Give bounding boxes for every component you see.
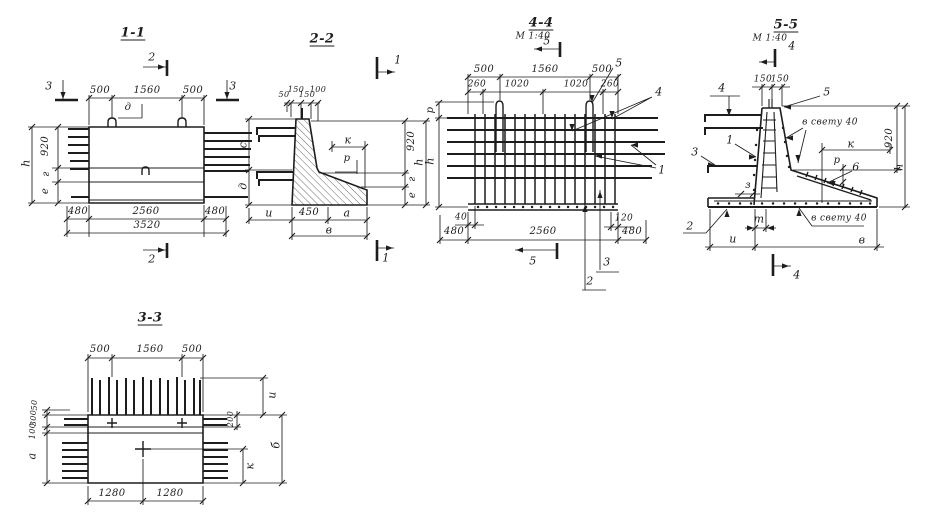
dim-label: 480 [444, 227, 464, 237]
dim-label: 480 [68, 207, 88, 217]
callout-label: 6 [852, 162, 859, 173]
view-title-3-3: 3-3 [138, 312, 163, 325]
callout-label: 1 [658, 165, 665, 176]
dim-label: 1560 [136, 345, 163, 355]
param-label: и [267, 391, 278, 399]
callout-label: 5 [823, 87, 830, 98]
dim-label: 3520 [133, 221, 160, 231]
param-label: в [859, 235, 866, 246]
section-mark-label: 3 [45, 81, 52, 92]
callout-label: 4 [655, 87, 662, 98]
note-label: в свету 40 [802, 119, 858, 128]
dim-label: 150 [754, 76, 772, 85]
view-title-4-4: 4-4 [529, 17, 554, 30]
param-label: г [408, 176, 418, 181]
param-label: к [345, 135, 352, 146]
param-label: р [344, 154, 351, 164]
dim-label: 100 [29, 423, 37, 439]
param-label: р [426, 107, 436, 114]
dim-label: 500 [183, 86, 203, 96]
section-mark-label: 2 [148, 254, 155, 265]
dim-label: 480 [205, 207, 225, 217]
dim-label: 2560 [529, 227, 556, 237]
dim-label: 500 [90, 86, 110, 96]
dim-label: 500 [592, 65, 612, 75]
dim-label: 1020 [505, 81, 530, 90]
param-label: h [425, 157, 436, 165]
section-mark-label: 5 [529, 256, 536, 267]
dim-label: 500 [182, 345, 202, 355]
dim-label: 1280 [156, 489, 183, 499]
dim-label: 1020 [564, 81, 589, 90]
dim-label: 150 [771, 76, 789, 85]
dim-label: 1560 [531, 65, 558, 75]
dim-label: 450 [299, 208, 319, 218]
note-label: в свету 40 [811, 215, 867, 224]
param-label: е [41, 188, 51, 194]
dim-label: 100 [310, 86, 326, 94]
callout-label: 4 [718, 83, 725, 94]
param-label: а [344, 208, 351, 219]
callout-label: 3 [691, 147, 698, 158]
param-label: и [265, 208, 273, 219]
view-title-1-1: 1-1 [121, 27, 146, 40]
dim-label: 120 [615, 215, 633, 224]
param-label: а [27, 453, 38, 460]
callout-label: 3 [603, 257, 610, 268]
dim-label: 40 [455, 214, 467, 223]
dim-label: 480 [622, 227, 642, 237]
drawing-labels: 1-122335001560500д920геh480256048035202-… [0, 0, 926, 528]
param-label: т [754, 214, 765, 225]
section-mark-label: 3 [229, 81, 236, 92]
param-label: з [745, 181, 751, 191]
param-label: h [21, 159, 32, 167]
section-mark-label: 5 [543, 36, 550, 47]
dim-label: 200 [227, 411, 235, 427]
param-label: к [245, 463, 256, 470]
dim-label: 1280 [98, 489, 125, 499]
param-label: г [42, 171, 52, 176]
dim-label: 920 [885, 128, 895, 148]
param-label: h [894, 163, 905, 171]
dim-label: 500 [474, 65, 494, 75]
view-title-2-2: 2-2 [310, 33, 335, 46]
param-label: в [326, 225, 333, 236]
section-mark-label: 2 [148, 52, 155, 63]
callout-label: 2 [686, 221, 693, 232]
section-mark-label: 1 [382, 253, 389, 264]
section-mark-label: 4 [793, 270, 800, 281]
dim-label: 2560 [132, 207, 159, 217]
param-label: к [848, 139, 855, 150]
param-label: е [408, 192, 418, 198]
dim-label: 500 [90, 345, 110, 355]
section-mark-label: 1 [394, 55, 401, 66]
param-label: с [238, 142, 249, 149]
param-label: и [729, 234, 737, 245]
param-label: р [834, 156, 841, 166]
dim-label: 920 [407, 131, 417, 151]
callout-label: 2 [586, 276, 593, 287]
drawing-canvas: 1-122335001560500д920геh480256048035202-… [0, 0, 926, 528]
section-mark-label: 4 [788, 41, 795, 52]
param-label: б [271, 441, 282, 448]
param-label: д [125, 103, 132, 113]
dim-label: 920 [41, 136, 51, 156]
scale-label: М 1:40 [753, 35, 788, 44]
dim-label: 1560 [133, 86, 160, 96]
dim-label: 260 [601, 81, 619, 90]
callout-label: 1 [726, 135, 733, 146]
callout-label: 5 [615, 58, 622, 69]
view-title-5-5: 5-5 [774, 19, 799, 32]
param-label: д [238, 182, 249, 189]
dim-label: 260 [468, 81, 486, 90]
